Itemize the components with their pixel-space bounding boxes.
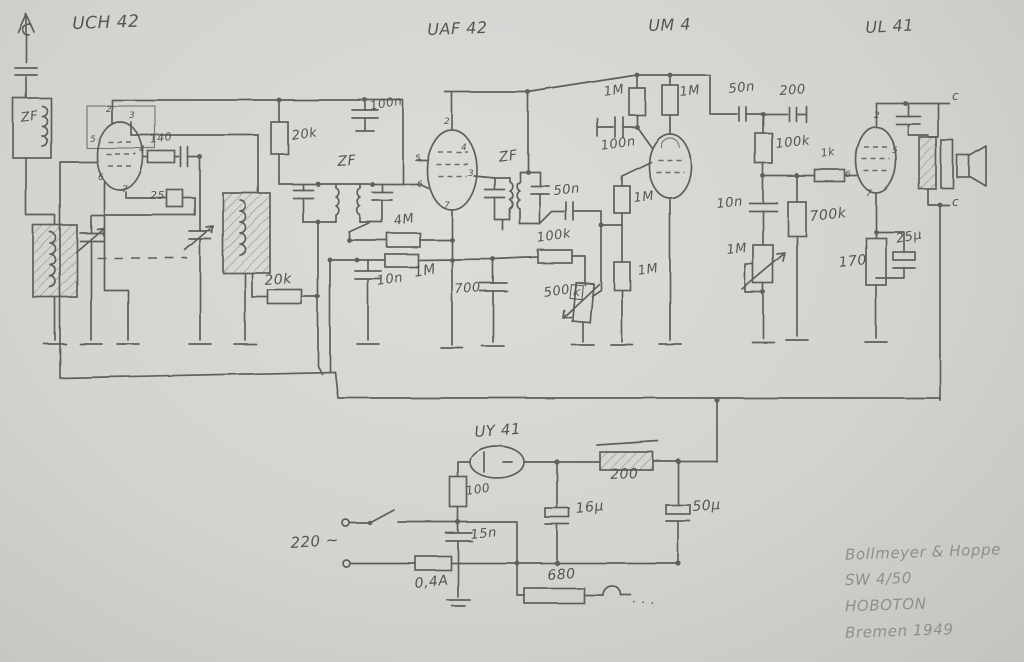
cap-700-label: 700 — [454, 281, 481, 296]
tube-uaf42 — [417, 92, 528, 345]
pot-500k-label: 500 — [543, 283, 571, 300]
resistor-1k-label: 1k — [820, 146, 836, 159]
resistor-100-label: 100 — [465, 482, 491, 497]
pin-ul41-2: 2 — [874, 112, 880, 121]
antenna-coil-label: ZF — [20, 110, 39, 125]
resistor-680-label: 680 — [547, 567, 576, 583]
cap-50u-label: 50µ — [692, 498, 721, 514]
tube-label-ul41: UL 41 — [865, 17, 914, 36]
tube-label-uch42: UCH 42 — [72, 14, 140, 33]
if1-label: ZF — [337, 154, 357, 169]
pin-uch42-3: 3 — [129, 112, 135, 121]
resistor-25 — [167, 190, 195, 207]
capacitor-16u — [545, 462, 569, 563]
resistor-200-bottom-label: 200 — [610, 467, 639, 482]
capacitor-200-right — [789, 106, 806, 122]
capacitor-50n-detector — [540, 202, 601, 225]
pin-uch42-4: 4 — [139, 146, 145, 155]
pin-uaf42-6: 6 — [417, 181, 423, 190]
resistor-20k-lower-label: 20k — [264, 272, 292, 288]
resistor-700k-label: 700k — [809, 206, 847, 224]
resistor-1m-a-label: 1M — [633, 190, 655, 205]
mains-voltage-label: 220 ∼ — [290, 533, 339, 551]
resistor-4m — [349, 233, 452, 247]
pin-uaf42-5: 5 — [415, 155, 421, 164]
antenna-series-capacitor — [15, 68, 37, 98]
pin-uaf42-7: 7 — [444, 202, 450, 211]
resistor-1m-um4-right — [662, 75, 678, 134]
cap-50n-det-label: 50n — [553, 182, 580, 198]
pin-uch42-6: 6 — [98, 174, 104, 183]
resistor-1m-um4-left — [629, 75, 645, 127]
pot-500k-k-label: k — [569, 284, 584, 300]
pin-uaf42-2: 2 — [444, 118, 450, 127]
resistor-20k-lower — [268, 290, 318, 304]
pin-uaf42-4: 4 — [461, 144, 467, 153]
tube-label-uy41: UY 41 — [474, 422, 521, 440]
pin-ul41-5: 5 — [892, 147, 898, 156]
tube-label-um4: UM 4 — [648, 17, 691, 34]
resistor-4m-label: 4M — [393, 212, 415, 228]
capacitor-50u — [666, 461, 690, 563]
oscillator-coil-box — [223, 135, 270, 340]
grid-line-if1 — [279, 184, 428, 188]
resistor-1m-b — [614, 225, 630, 342]
resistor-20k-top-label: 20k — [291, 126, 318, 142]
terminal-c-top-label: c — [952, 90, 959, 102]
resistor-170-label: 170 — [838, 253, 868, 270]
pin-uch42-2: 2 — [106, 106, 112, 115]
cathode-network-ul41 — [866, 232, 915, 338]
antenna-icon — [18, 14, 34, 62]
resistor-680-heater — [524, 586, 631, 603]
signature-line-4: Bremen 1949 — [845, 620, 954, 642]
cap-15n-label: 15n — [470, 526, 497, 542]
output-transformer — [919, 103, 953, 400]
resistor-20k-top — [271, 100, 288, 184]
pin-uch42-7: 7 — [122, 186, 128, 195]
cap-16u-label: 16µ — [575, 499, 605, 516]
ground-symbols — [44, 340, 887, 348]
resistor-1m-mid-label: 1M — [413, 262, 437, 280]
tube-um4 — [649, 134, 691, 340]
variable-capacitor-2 — [185, 157, 213, 340]
resistor-1m-um4-right-label: 1M — [679, 84, 701, 99]
cap-10n-right-label: 10n — [716, 195, 743, 211]
if2-label: ZF — [498, 148, 518, 164]
signature-line-2: SW 4/50 — [845, 569, 913, 589]
pin-uch42-5: 5 — [90, 136, 96, 145]
capacitor-10n-right — [749, 176, 777, 245]
resistor-1m-um4-left-label: 1M — [603, 83, 625, 99]
tube-ul41 — [856, 103, 896, 238]
capacitor-700 — [480, 259, 507, 342]
variable-capacitor-1 — [76, 198, 195, 340]
pin-ul41-7: 7 — [866, 190, 872, 199]
fuse-04a — [350, 556, 678, 570]
schematic-page: Bollmeyer & Hoppe SW 4/50 HOBOTON Bremen… — [0, 0, 1024, 662]
resistor-140-label: 140 — [149, 131, 173, 145]
pin-uaf42-3: 3 — [468, 170, 474, 179]
tuning-coil-box — [33, 225, 77, 340]
resistor-100k-right-label: 100k — [775, 134, 811, 151]
resistor-100k-right — [755, 114, 772, 176]
capacitor-anode-ul41 — [896, 103, 928, 135]
capacitor-10n-mid — [355, 260, 381, 340]
resistor-700k — [788, 176, 806, 336]
tube-uy41 — [458, 446, 600, 478]
cap-10n-mid-label: 10n — [376, 271, 404, 288]
signature-line-3: HOBOTON — [845, 595, 927, 616]
pin-ul41-6: 6 — [845, 171, 851, 180]
resistor-100k-detector — [538, 250, 585, 285]
resistor-1m-b-label: 1M — [637, 262, 659, 278]
um4-top-bus — [528, 75, 737, 114]
resistor-25-label: 25 — [150, 190, 165, 201]
cap-200-right-label: 200 — [779, 83, 806, 98]
tube-label-uaf42: UAF 42 — [427, 20, 488, 38]
terminal-c-bottom-label: c — [952, 196, 959, 208]
resistor-200-filter — [597, 441, 717, 470]
pot-1m-tone-label: 1M — [726, 242, 748, 257]
speaker-icon — [957, 146, 986, 186]
if-transformer-2 — [485, 172, 549, 230]
resistor-140 — [148, 147, 200, 167]
cap-50n-right-label: 50n — [728, 80, 755, 96]
heater-dots: · · · — [631, 596, 655, 611]
fuse-label: 0,4A — [414, 573, 449, 590]
